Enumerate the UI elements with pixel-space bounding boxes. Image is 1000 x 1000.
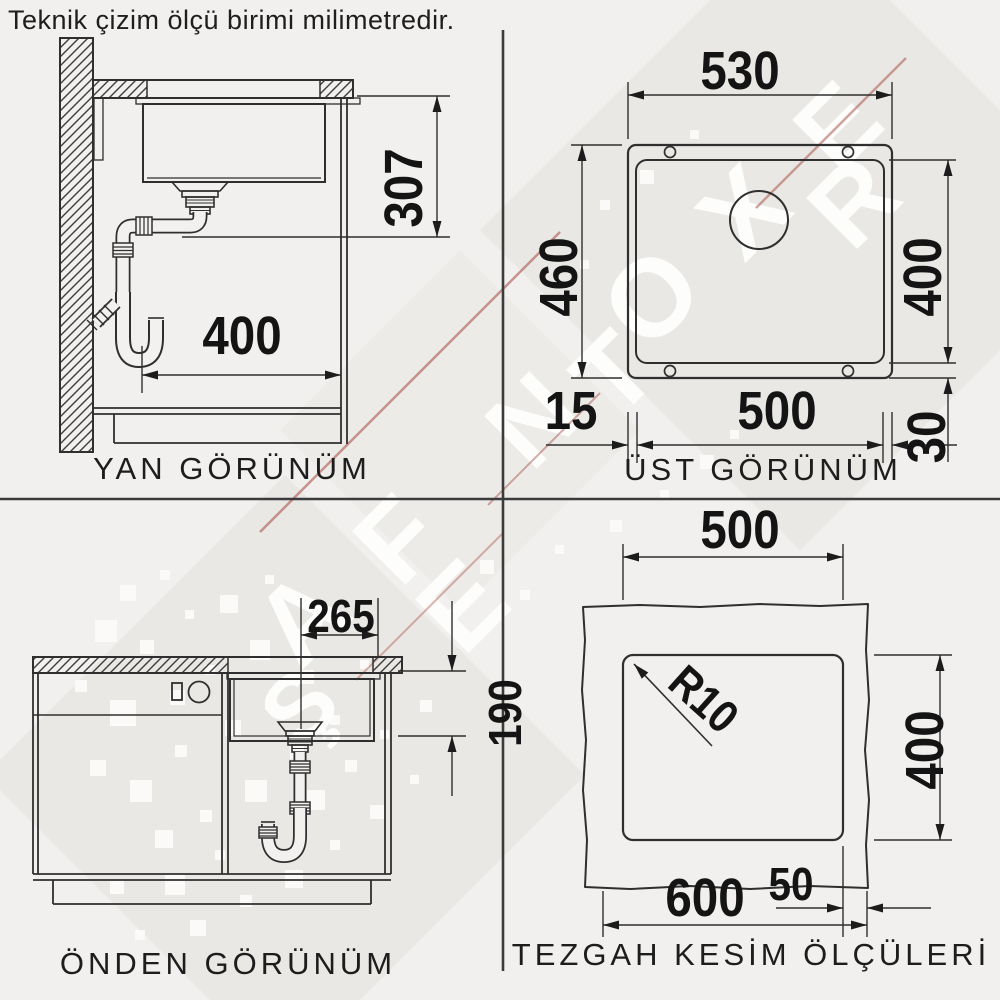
dim-400-cut-depth: 400 [898,710,952,789]
dim-460-outer-depth: 460 [532,237,586,316]
dim-500-bowl-width: 500 [737,384,816,438]
text-layer: Teknik çizim ölçü birimi milimetredir. Y… [0,0,1000,1000]
dim-265-drain-offset: 265 [307,593,375,639]
dim-15-left-rim: 15 [545,384,598,438]
side-view-label: YAN GÖRÜNÜM [93,451,371,487]
top-view-label: ÜST GÖRÜNÜM [624,452,902,488]
dim-190-bowl-height: 190 [482,679,528,747]
dim-500-cut-width: 500 [700,503,779,557]
dim-530-outer-width: 530 [700,44,779,98]
front-view-label: ÖNDEN GÖRÜNÜM [60,946,396,982]
dim-400-bowl-depth: 400 [896,237,950,316]
dim-307-counter-to-drain: 307 [377,148,431,227]
dim-400-cabinet-width: 400 [202,309,281,363]
dim-r10-corner-radius: R10 [661,657,747,741]
technical-drawing-sheet: A F E Ş N T O X E R [0,0,1000,1000]
dim-600-cabinet-width: 600 [665,871,744,925]
dim-30-bottom-rim: 30 [900,411,954,464]
drawing-unit-note: Teknik çizim ölçü birimi milimetredir. [8,5,455,36]
dim-50-side-margin: 50 [768,861,813,907]
cutout-view-label: TEZGAH KESİM ÖLÇÜLERİ [512,937,990,973]
